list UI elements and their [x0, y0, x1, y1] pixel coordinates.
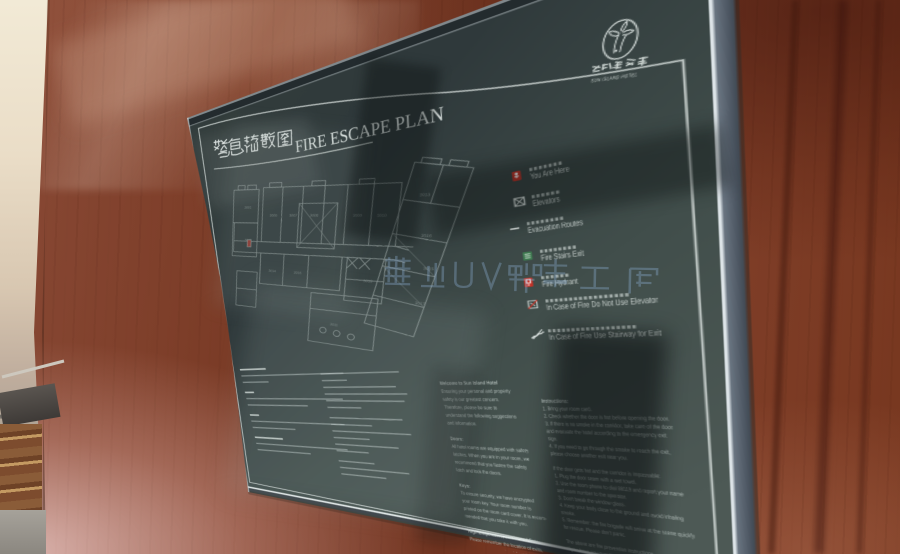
svg-text:3016: 3016: [421, 233, 433, 239]
svg-text:3012: 3012: [363, 278, 373, 284]
